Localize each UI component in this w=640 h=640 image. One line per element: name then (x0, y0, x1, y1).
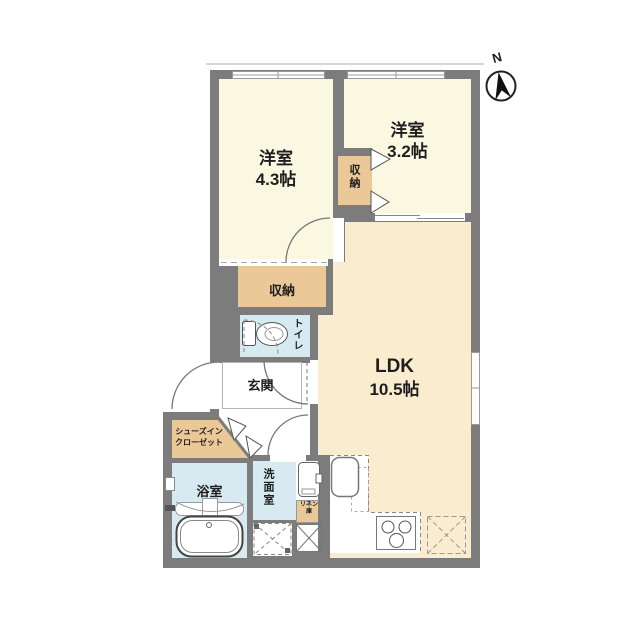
linen-label: リネン 庫 (296, 502, 322, 516)
bedroom1-label: 洋室 4.3帖 (219, 148, 333, 190)
floorplan: 洋室 4.3帖 洋室 3.2帖 LDK 10.5帖 収納 収納 トイレ 玄関 シ… (0, 0, 640, 640)
compass-icon (487, 71, 516, 101)
bedroom1-name: 洋室 (219, 148, 333, 169)
bedroom1-door-gap (333, 218, 344, 262)
bedroom2-label: 洋室 3.2帖 (344, 120, 471, 162)
front-door-gap (209, 362, 219, 409)
window-bedroom1 (232, 71, 325, 79)
linen-line1: リネン (296, 502, 322, 509)
bedroom2-size: 3.2帖 (344, 141, 471, 162)
ldk-size: 10.5帖 (318, 378, 471, 401)
bathroom-label: 浴室 (172, 481, 247, 500)
shoe-closet-line2: クローゼット (166, 437, 232, 448)
room-bathroom (172, 463, 247, 558)
bedroom2-sliding-door (374, 213, 466, 221)
washroom-label: 洗面室 (260, 468, 276, 507)
ldk-label: LDK 10.5帖 (318, 355, 471, 401)
storage-mid-label: 収納 (346, 164, 362, 190)
entrance-label: 玄関 (219, 375, 302, 394)
compass-n-label: N (485, 48, 508, 68)
bedroom1-size: 4.3帖 (219, 169, 333, 190)
window-bedroom2 (347, 71, 445, 79)
storage-low-sliding-door (219, 259, 328, 266)
bedroom2-name: 洋室 (344, 120, 471, 141)
shoe-closet-line1: シューズイン (166, 426, 232, 437)
storage-low-label: 収納 (238, 280, 326, 299)
washer-pan-area (253, 523, 292, 556)
shoe-closet-label: シューズイン クローゼット (166, 426, 232, 448)
ldk-door-gap (310, 360, 318, 404)
toilet-label: トイレ (289, 318, 304, 351)
ldk-name: LDK (318, 355, 471, 378)
window-ldk (471, 352, 480, 425)
linen-line2: 庫 (296, 509, 322, 516)
kitchen-counter-horizontal (330, 512, 420, 553)
